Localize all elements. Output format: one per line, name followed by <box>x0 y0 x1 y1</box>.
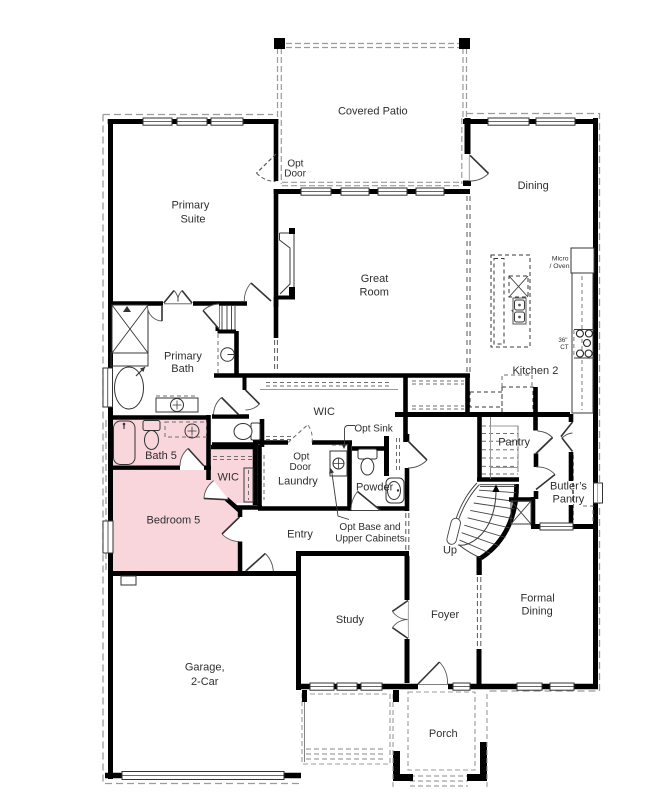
svg-text:WIC: WIC <box>218 472 239 484</box>
svg-text:Dining: Dining <box>522 605 553 617</box>
svg-text:Micro: Micro <box>552 255 569 262</box>
svg-text:Opt Sink: Opt Sink <box>354 424 393 435</box>
svg-text:Bath 5: Bath 5 <box>145 450 177 462</box>
svg-text:Up: Up <box>443 545 457 557</box>
svg-text:Bedroom 5: Bedroom 5 <box>146 515 200 527</box>
svg-text:Room: Room <box>360 286 389 298</box>
svg-text:Pantry: Pantry <box>553 494 585 506</box>
svg-text:Dining: Dining <box>518 180 549 192</box>
svg-text:Pantry: Pantry <box>498 436 530 448</box>
svg-text:Door: Door <box>290 462 312 473</box>
svg-text:Powder: Powder <box>356 482 394 494</box>
svg-text:/ Oven: / Oven <box>549 263 569 270</box>
svg-text:Porch: Porch <box>429 728 458 740</box>
svg-text:CT: CT <box>560 344 568 351</box>
svg-text:Study: Study <box>336 614 365 626</box>
svg-text:Covered Patio: Covered Patio <box>338 106 408 118</box>
svg-text:Entry: Entry <box>287 529 313 541</box>
svg-text:Primary: Primary <box>171 200 209 212</box>
svg-text:Opt Base and: Opt Base and <box>339 522 400 533</box>
svg-text:2-Car: 2-Car <box>191 676 219 688</box>
svg-text:Suite: Suite <box>180 213 205 225</box>
svg-text:Formal: Formal <box>520 592 554 604</box>
svg-text:Foyer: Foyer <box>431 609 459 621</box>
svg-text:Primary: Primary <box>164 350 202 362</box>
svg-text:Butler’s: Butler’s <box>550 480 587 492</box>
svg-text:Great: Great <box>361 273 389 285</box>
svg-text:Door: Door <box>284 169 306 180</box>
svg-text:Kitchen 2: Kitchen 2 <box>512 365 558 377</box>
svg-text:Opt: Opt <box>293 451 309 462</box>
svg-text:Bath: Bath <box>171 363 194 375</box>
svg-text:Garage,: Garage, <box>185 661 225 673</box>
svg-text:Laundry: Laundry <box>278 475 318 487</box>
svg-text:WIC: WIC <box>314 406 335 418</box>
svg-text:Upper Cabinets: Upper Cabinets <box>335 534 404 545</box>
